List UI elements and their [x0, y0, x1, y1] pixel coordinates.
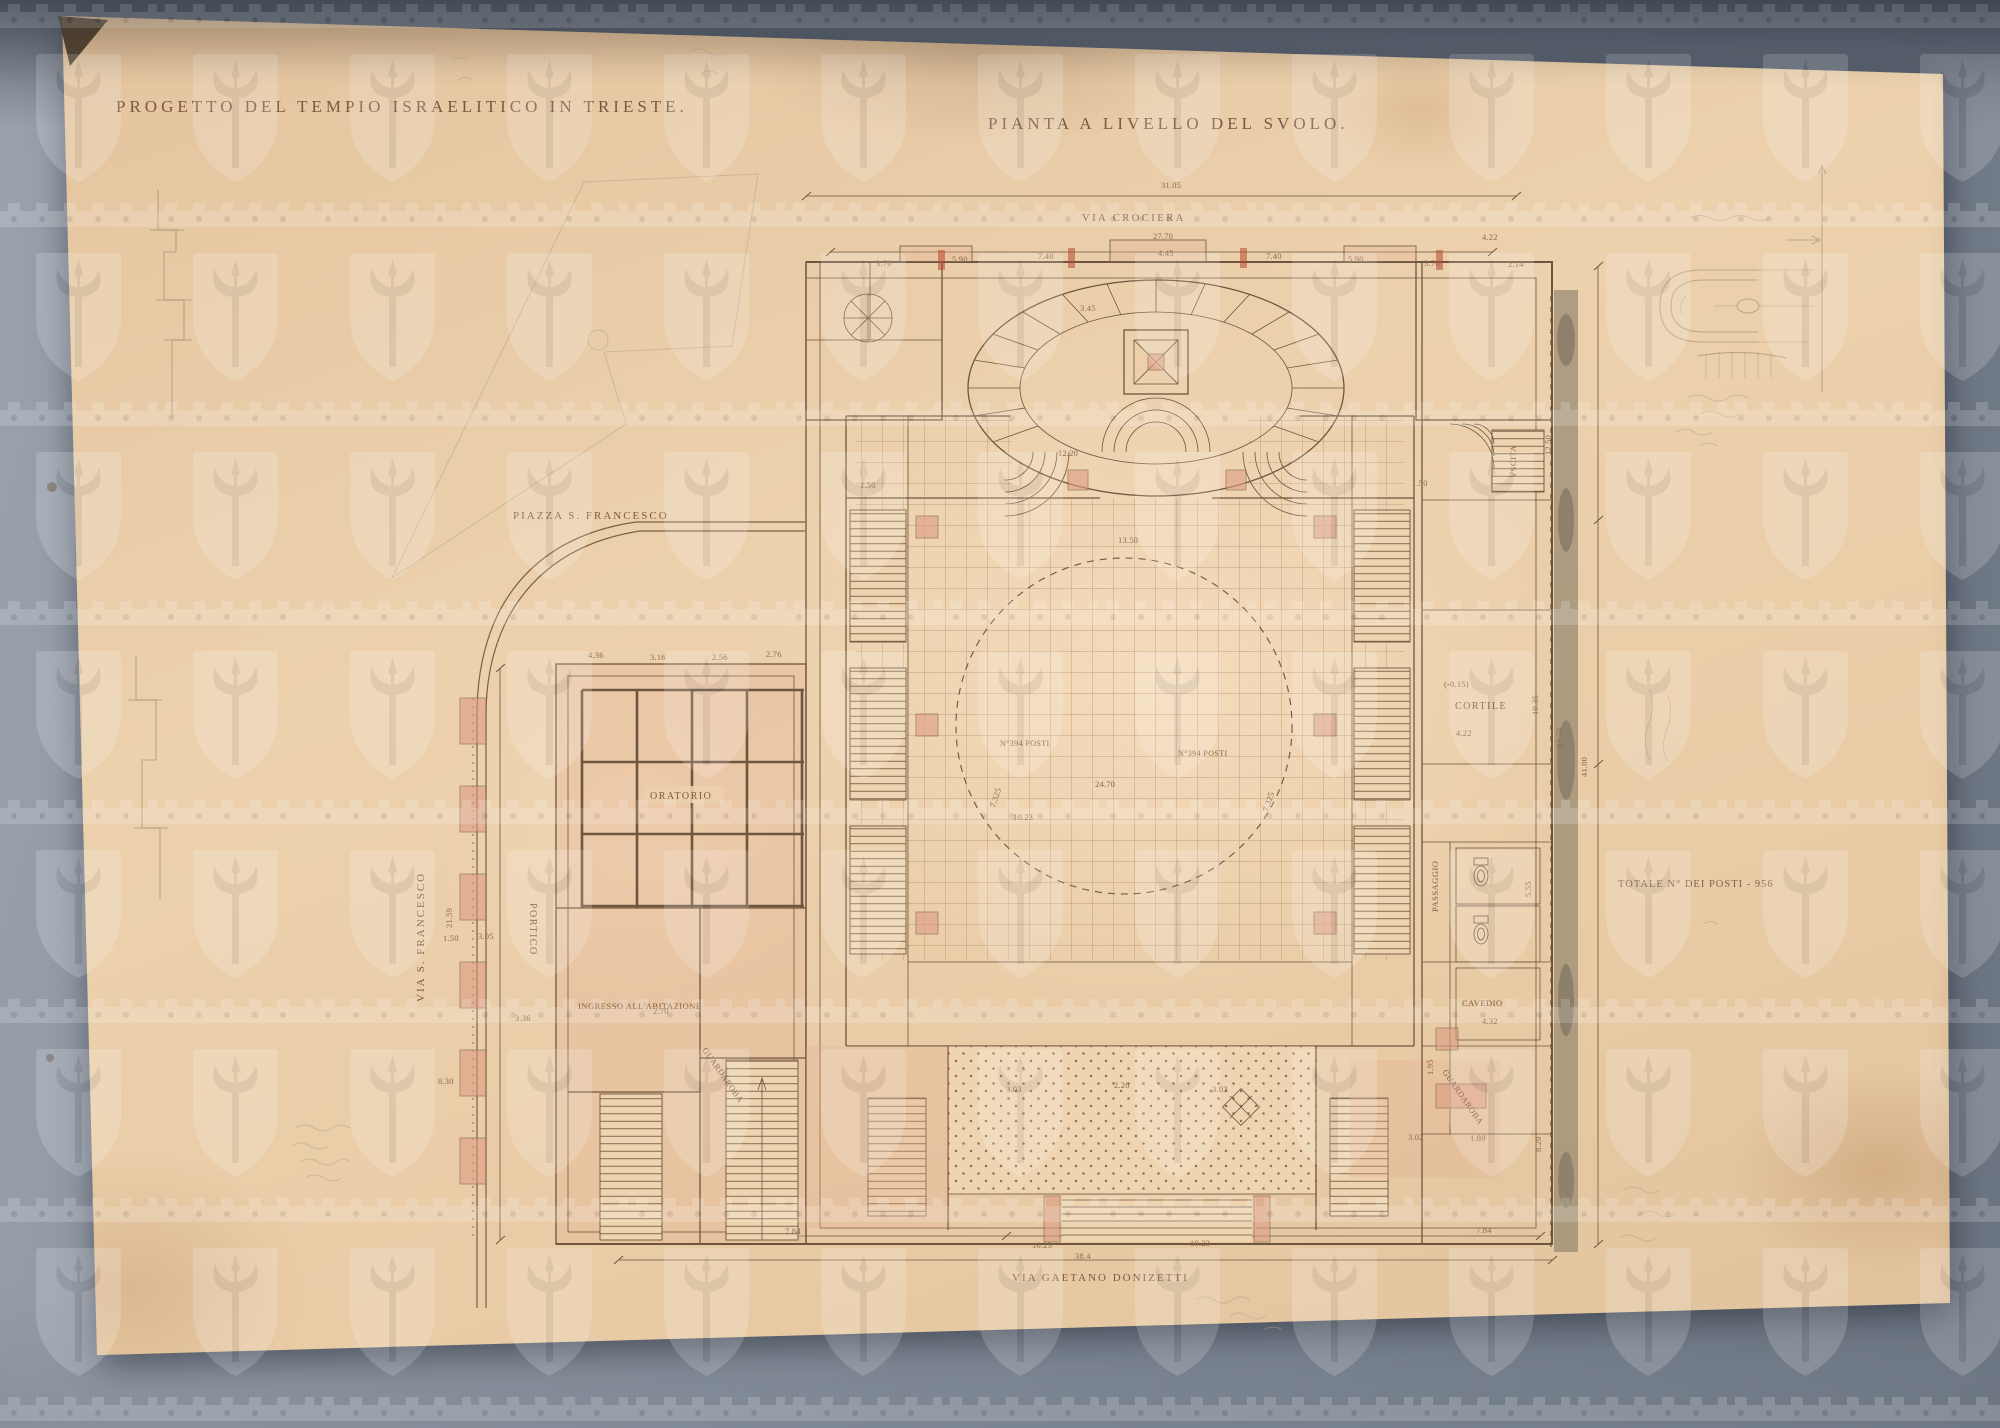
- dim-label: 4.32: [1482, 1016, 1498, 1026]
- street-label-via-crociera: VIA CROCIERA: [1082, 213, 1186, 224]
- dim-label: 5.90: [1348, 254, 1364, 264]
- dim-label: (-0.15): [1444, 679, 1469, 689]
- dim-label: 1.89: [1470, 1133, 1486, 1143]
- dim-label: 10.23: [1013, 812, 1033, 822]
- dim-label: 2.56: [712, 652, 728, 662]
- photographed-drawing: PROGETTO DEL TEMPIO ISRAELITICO IN TRIES…: [0, 0, 2000, 1428]
- dim-label: 2.76: [766, 649, 782, 659]
- paper-corner-fold: [46, 16, 108, 1062]
- room-label-cortile: CORTILE: [1455, 701, 1507, 712]
- room-label-portico: PORTICO: [527, 903, 538, 956]
- dim-label: 3.36: [515, 1013, 531, 1023]
- dim-label: 3.05: [478, 931, 494, 941]
- dim-label: 4.36: [588, 650, 604, 660]
- street-label-via-s-francesco: VIA S. FRANCESCO: [415, 872, 427, 1002]
- dim-label: 12.50: [1543, 435, 1553, 455]
- pencil-sketch-top-right: [1660, 166, 1826, 417]
- dim-label: 12.20: [1058, 448, 1078, 458]
- street-label-piazza-s-francesco: PIAZZA S. FRANCESCO: [513, 510, 669, 522]
- dim-label: 3.70: [1424, 258, 1440, 268]
- dim-label: 5.55: [1523, 881, 1533, 897]
- dim-label: 10.23: [1190, 1238, 1210, 1248]
- dim-label: 3.70: [876, 258, 892, 268]
- dim-label: 21.59: [444, 908, 454, 928]
- room-label-passaggio: PASSAGGIO: [1430, 861, 1440, 912]
- room-label-oratorio: ORATORIO: [650, 791, 712, 802]
- dim-label: 1.50: [860, 480, 876, 490]
- main-hall: [846, 416, 1414, 1046]
- note-posti-left: N°394 POSTI: [1000, 739, 1050, 748]
- street-label-via-gaetano-donizetti: VIA GAETANO DONIZETTI: [1012, 1272, 1189, 1284]
- dim-label: 27.70: [1153, 231, 1173, 241]
- dim-label: 5.90: [952, 254, 968, 264]
- room-label-cavedio: CAVEDIO: [1462, 998, 1503, 1008]
- party-wall-band: [1551, 290, 1578, 1252]
- dim-label: 8.20: [1533, 1136, 1543, 1152]
- dim-label: 41.00: [1579, 757, 1589, 777]
- drawing-title-right: PIANTA A LIVELLO DEL SVOLO.: [988, 114, 1349, 133]
- drawing-title-left: PROGETTO DEL TEMPIO ISRAELITICO IN TRIES…: [116, 97, 688, 116]
- room-label-uscita: VSCITA: [1508, 445, 1518, 478]
- note-totale-posti: TOTALE N° DEI POSTI - 956: [1618, 879, 1774, 890]
- dim-label: 1.50: [1412, 478, 1428, 488]
- dim-label: 38.4: [1075, 1251, 1091, 1261]
- dim-label: 3.16: [650, 652, 666, 662]
- dim-label: 3.03: [1212, 1084, 1228, 1094]
- dim-label: 24.70: [1095, 779, 1115, 789]
- dim-label: 3.02: [1408, 1132, 1424, 1142]
- entrance-vestibule: [806, 1046, 1500, 1242]
- dim-label: 2.14: [1508, 259, 1524, 269]
- dim-label: 7.84: [785, 1226, 801, 1236]
- dim-label: 8.30: [438, 1076, 454, 1086]
- dim-label: 2.20: [1114, 1080, 1130, 1090]
- dim-label: 7.40: [1266, 251, 1282, 261]
- dim-label: 13.50: [1118, 535, 1138, 545]
- dim-label: 7.40: [1038, 251, 1054, 261]
- floor-plan-drawing: PROGETTO DEL TEMPIO ISRAELITICO IN TRIES…: [0, 0, 2000, 1428]
- dim-label: 2.70: [653, 1006, 669, 1016]
- dim-label: 3.45: [1080, 303, 1096, 313]
- dim-label: 4.22: [1456, 728, 1472, 738]
- dim-label: 31.05: [1161, 180, 1181, 190]
- room-label-ingresso: INGRESSO ALL'ABITAZIONE: [578, 1001, 702, 1011]
- dim-label: 3.03: [1006, 1084, 1022, 1094]
- note-posti-right: N°394 POSTI: [1178, 749, 1228, 758]
- dim-label: 4.45: [1158, 248, 1174, 258]
- dim-label: 1.95: [1425, 1059, 1435, 1075]
- annex-linework: [460, 664, 806, 1244]
- dim-label: 27.70: [1554, 728, 1564, 748]
- dim-label: 10.35: [1530, 695, 1540, 715]
- dim-label: 1.50: [443, 933, 459, 943]
- dim-label: 7.84: [1476, 1225, 1492, 1235]
- dim-label: 4.22: [1482, 232, 1498, 242]
- dim-label: 10.23: [1032, 1240, 1052, 1250]
